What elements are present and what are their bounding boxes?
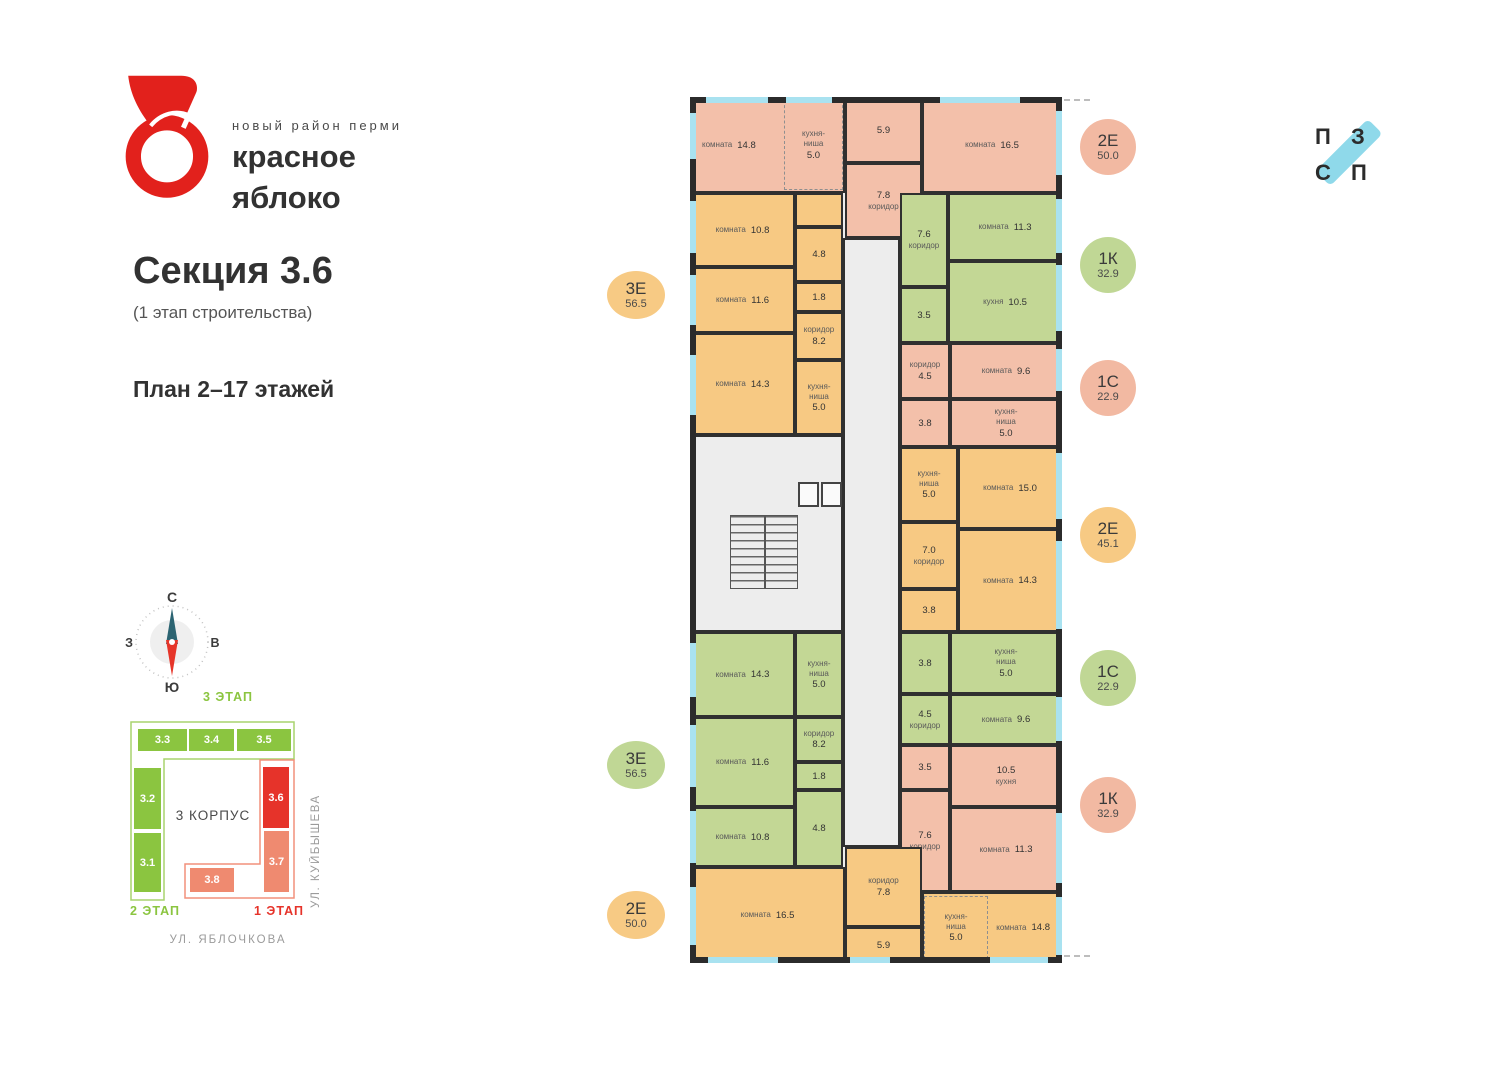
apt-1s22-mid-room: комната9.6 — [950, 694, 1062, 745]
apt-1k32-top-room: комната11.3 — [948, 193, 1062, 261]
minimap-section-3.2: 3.2 — [133, 767, 162, 830]
page-title: Секция 3.6 — [133, 250, 333, 293]
minimap-section-3.8: 3.8 — [189, 867, 235, 893]
apt-2e45-room-1: комната15.0 — [958, 447, 1062, 529]
minimap-section-3.5: 3.5 — [236, 728, 292, 752]
apt-2e45-room-2: комната14.3 — [958, 529, 1062, 632]
apartment-badge-1К-32.9: 1К32.9 — [1080, 777, 1136, 833]
window-mark — [1056, 897, 1062, 955]
apt-1s22-top-kitchen-niche: кухня- ниша5.0 — [950, 399, 1062, 447]
minimap-section-3.7: 3.7 — [263, 830, 290, 893]
pzsp-letter-s: С — [1315, 160, 1331, 186]
apartment-badge-1С-22.9: 1С22.9 — [1080, 650, 1136, 706]
apt-2e50-top-bath: 5.9 — [845, 97, 922, 163]
svg-text:С: С — [167, 590, 177, 605]
apt-3e56-top-hall: коридор8.2 — [795, 312, 843, 360]
window-mark — [786, 97, 832, 103]
apt-1k32-top-kitchen: кухня10.5 — [948, 261, 1062, 343]
svg-text:З: З — [125, 636, 133, 650]
apt-2e50-top-kitchen-niche: кухня- ниша5.0 — [784, 100, 843, 190]
section-continuation-dash — [1064, 955, 1090, 957]
apartment-badge-2Е-50.0: 2Е50.0 — [607, 891, 665, 939]
apt-1s22-top-bath: 3.8 — [900, 399, 950, 447]
window-mark — [690, 811, 696, 863]
compass-icon: С Ю В З — [122, 590, 222, 694]
apt-3e56-top-wc: 1.8 — [795, 282, 843, 312]
krasnoe-yabloko-logo-icon — [118, 72, 216, 202]
elevator-icon — [821, 482, 842, 507]
window-mark — [1056, 453, 1062, 519]
window-mark — [1056, 265, 1062, 331]
apt-1s22-top-hall: коридор4.5 — [900, 343, 950, 399]
floorplan: комната14.8кухня- ниша5.05.97.8коридорко… — [690, 97, 1062, 963]
pzsp-letter-p2: П — [1351, 160, 1367, 186]
window-mark — [708, 957, 778, 963]
window-mark — [690, 643, 696, 697]
window-mark — [1056, 199, 1062, 253]
apt-1s22-mid-hall: 4.5коридор — [900, 694, 950, 745]
apt-3e56-top-room-1: комната10.8 — [690, 193, 795, 267]
site-minimap: 3.33.43.53.23.13.63.73.8 3 ЭТАП 2 ЭТАП 1… — [128, 690, 328, 952]
apt-2e45-kitchen-niche: кухня- ниша5.0 — [900, 447, 958, 522]
pzsp-letter-z: З — [1351, 124, 1365, 150]
brand-name-line2: яблоко — [232, 181, 402, 215]
street-yablochkova-label: УЛ. ЯБЛОЧКОВА — [128, 934, 328, 946]
window-mark — [1056, 349, 1062, 391]
apt-1s22-top-room: комната9.6 — [950, 343, 1062, 399]
apt-3e56-top-room-2: комната11.6 — [690, 267, 795, 333]
staircase-icon — [730, 515, 798, 589]
apt-2e50-top-room-2: комната16.5 — [922, 97, 1062, 193]
apt-2e45-bath: 3.8 — [900, 589, 958, 632]
window-mark — [690, 355, 696, 415]
apt-2e50-bottom-hall: коридор7.8 — [845, 847, 922, 927]
window-mark — [690, 275, 696, 325]
brand-name-line1: красное — [232, 140, 402, 174]
apartment-badge-3Е-56.5: 3Е56.5 — [607, 271, 665, 319]
apt-3e56-bottom-kitchen-niche: кухня- ниша5.0 — [795, 632, 843, 717]
svg-text:В: В — [210, 636, 219, 650]
apt-1s22-mid-bath: 3.8 — [900, 632, 950, 694]
apartment-badge-3Е-56.5: 3Е56.5 — [607, 741, 665, 789]
apt-1k32-bottom-bath: 3.5 — [900, 745, 950, 790]
window-mark — [940, 97, 1020, 103]
window-mark — [990, 957, 1048, 963]
apartment-badge-2Е-50.0: 2Е50.0 — [1080, 119, 1136, 175]
brand-tagline: новый район перми — [232, 118, 402, 133]
apartment-badge-2Е-45.1: 2Е45.1 — [1080, 507, 1136, 563]
window-mark — [706, 97, 768, 103]
minimap-section-3.6: 3.6 — [262, 766, 290, 829]
apt-2e50-bottom-room-1: комната16.5 — [690, 867, 845, 963]
window-mark — [690, 113, 696, 159]
apt-2e50-bottom-kitchen-niche: кухня- ниша5.0 — [924, 896, 988, 959]
window-mark — [850, 957, 890, 963]
stage-3-label: 3 ЭТАП — [128, 690, 328, 704]
korpus-label: 3 КОРПУС — [168, 808, 258, 823]
elevator-icon — [798, 482, 819, 507]
apt-3e56-top-kitchen-niche: кухня- ниша5.0 — [795, 360, 843, 435]
apt-1k32-bottom-room: комната11.3 — [950, 807, 1062, 892]
apt-3e56-bottom-bath: 4.8 — [795, 790, 843, 867]
apt-3e56-top-closet — [795, 193, 843, 227]
window-mark — [690, 201, 696, 253]
minimap-section-3.3: 3.3 — [137, 728, 188, 752]
apt-2e45-hall: 7.0коридор — [900, 522, 958, 589]
pzsp-letter-p1: П — [1315, 124, 1331, 150]
apt-3e56-bottom-hall: коридор8.2 — [795, 717, 843, 762]
apt-3e56-top-bath: 4.8 — [795, 227, 843, 282]
stage-1-label: 1 ЭТАП — [254, 904, 304, 918]
apt-3e56-top-room-3: комната14.3 — [690, 333, 795, 435]
apt-1k32-top-hall: 7.6коридор — [900, 193, 948, 287]
apt-1k32-top-bath: 3.5 — [900, 287, 948, 343]
brand-text-block: новый район перми красное яблоко — [232, 118, 402, 215]
poster: { "brand": {"tagline": "новый район перм… — [0, 0, 1500, 1069]
window-mark — [690, 725, 696, 787]
apt-3e56-bottom-room-1: комната14.3 — [690, 632, 795, 717]
minimap-section-3.4: 3.4 — [188, 728, 235, 752]
apt-3e56-bottom-wc: 1.8 — [795, 762, 843, 790]
section-continuation-dash — [1064, 99, 1090, 101]
pzsp-logo: П З С П — [1305, 112, 1395, 196]
apartment-badge-1С-22.9: 1С22.9 — [1080, 360, 1136, 416]
window-mark — [1056, 541, 1062, 629]
page-subtitle: (1 этап строительства) — [133, 303, 312, 323]
window-mark — [690, 887, 696, 945]
apartment-badge-1К-32.9: 1К32.9 — [1080, 237, 1136, 293]
apt-1k32-bottom-kitchen: 10.5кухня — [950, 745, 1062, 807]
stage-2-label: 2 ЭТАП — [130, 904, 180, 918]
corridor-central — [843, 238, 900, 847]
apt-1s22-mid-kitchen-niche: кухня- ниша5.0 — [950, 632, 1062, 694]
apt-3e56-bottom-room-2: комната11.6 — [690, 717, 795, 807]
floors-label: План 2–17 этажей — [133, 376, 334, 403]
window-mark — [1056, 111, 1062, 175]
apt-3e56-bottom-room-3: комната10.8 — [690, 807, 795, 867]
minimap-section-3.1: 3.1 — [133, 832, 162, 893]
window-mark — [1056, 697, 1062, 741]
street-kuybysheva-label: УЛ. КУЙБЫШЕВА — [310, 748, 322, 908]
window-mark — [1056, 813, 1062, 883]
